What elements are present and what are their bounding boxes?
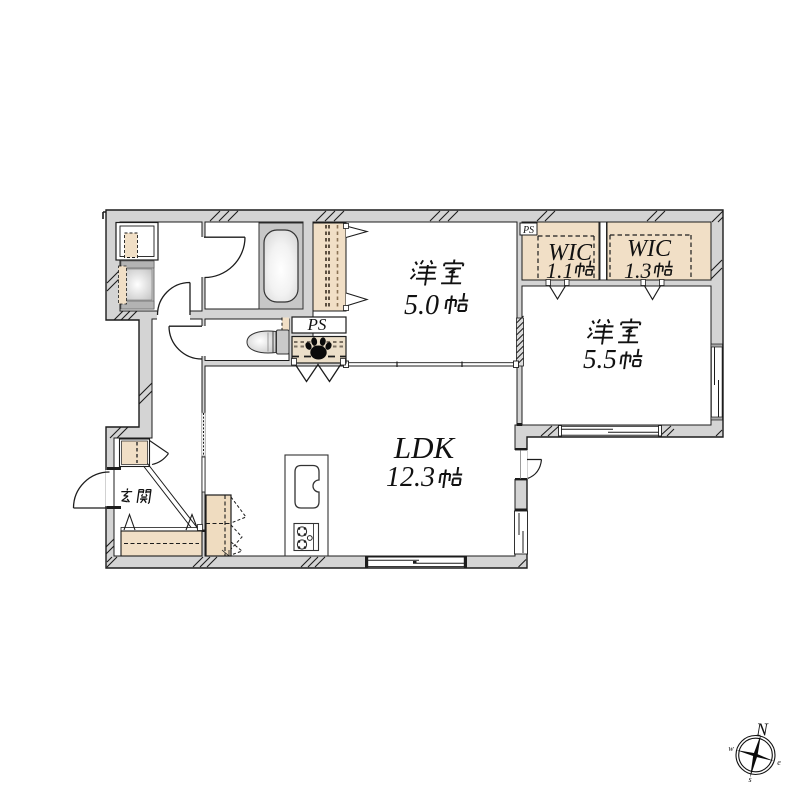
svg-text:PS: PS xyxy=(307,315,327,334)
svg-text:12.3: 12.3 xyxy=(386,462,435,493)
svg-text:e: e xyxy=(777,758,781,767)
svg-text:PS: PS xyxy=(522,225,534,236)
svg-text:LDK: LDK xyxy=(393,430,457,465)
svg-text:5.5: 5.5 xyxy=(583,344,617,374)
svg-text:w: w xyxy=(728,744,734,753)
svg-text:s: s xyxy=(748,775,751,784)
svg-text:N: N xyxy=(755,720,769,740)
svg-text:1.1: 1.1 xyxy=(546,258,574,283)
svg-text:5.0: 5.0 xyxy=(404,290,439,321)
svg-text:1.3: 1.3 xyxy=(624,258,652,283)
